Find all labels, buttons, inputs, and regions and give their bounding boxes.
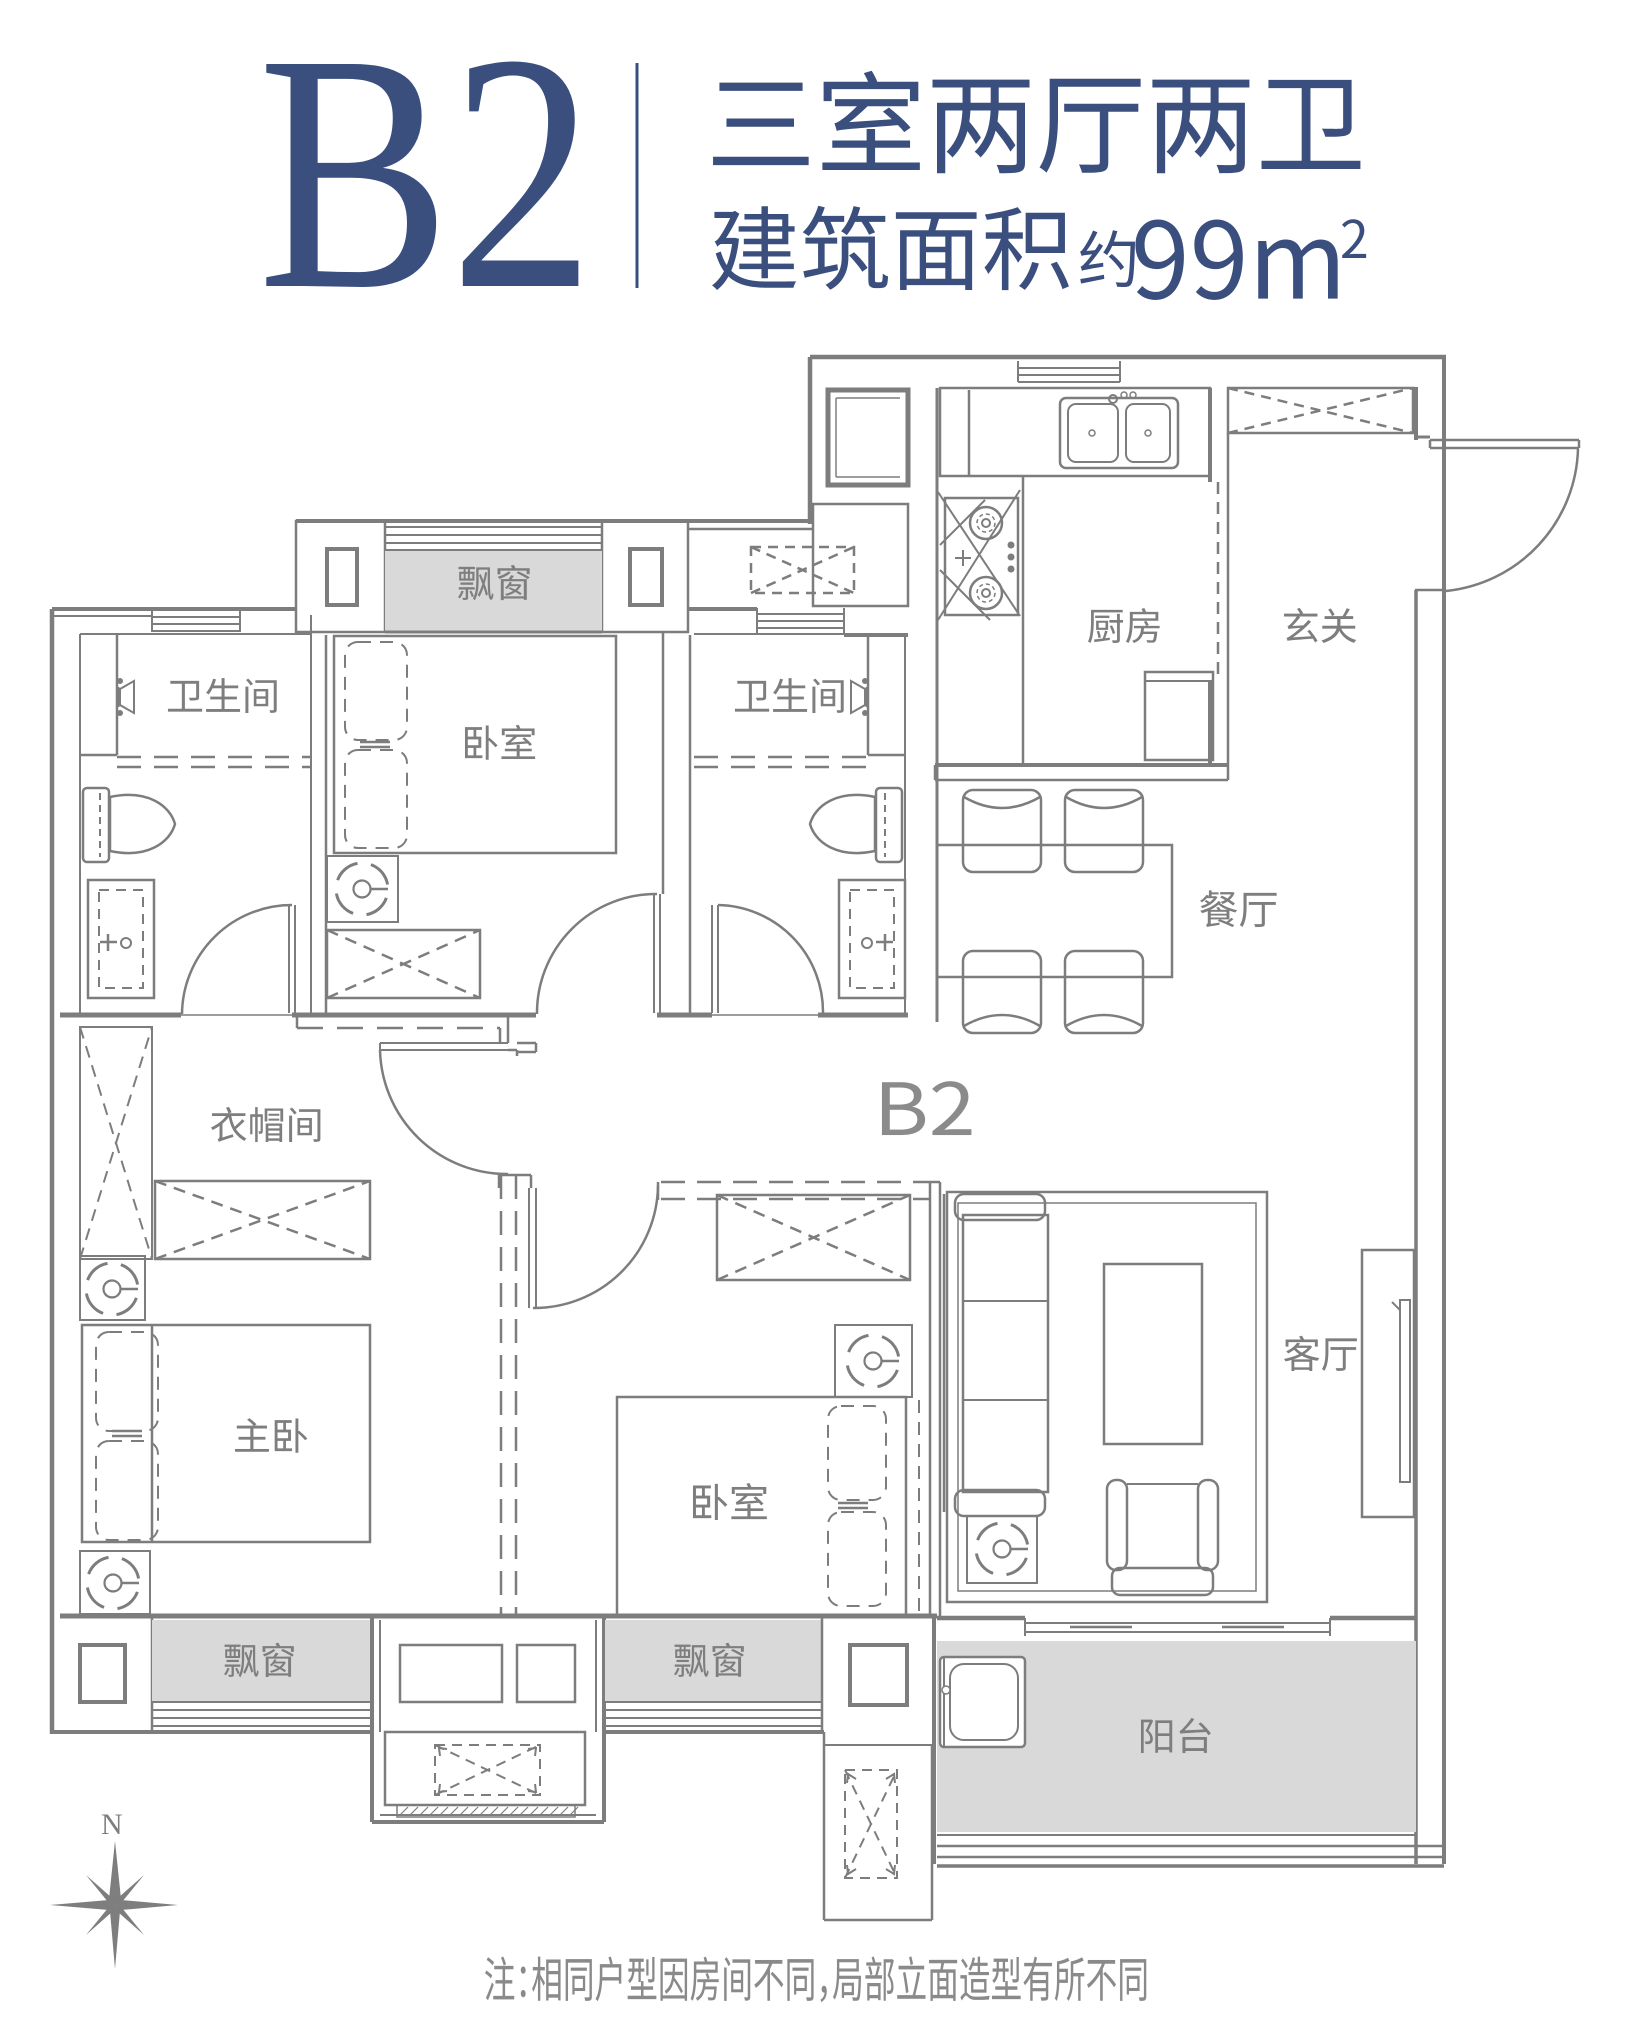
svg-text:N: N (101, 1808, 123, 1841)
svg-text:B2: B2 (258, 0, 594, 360)
